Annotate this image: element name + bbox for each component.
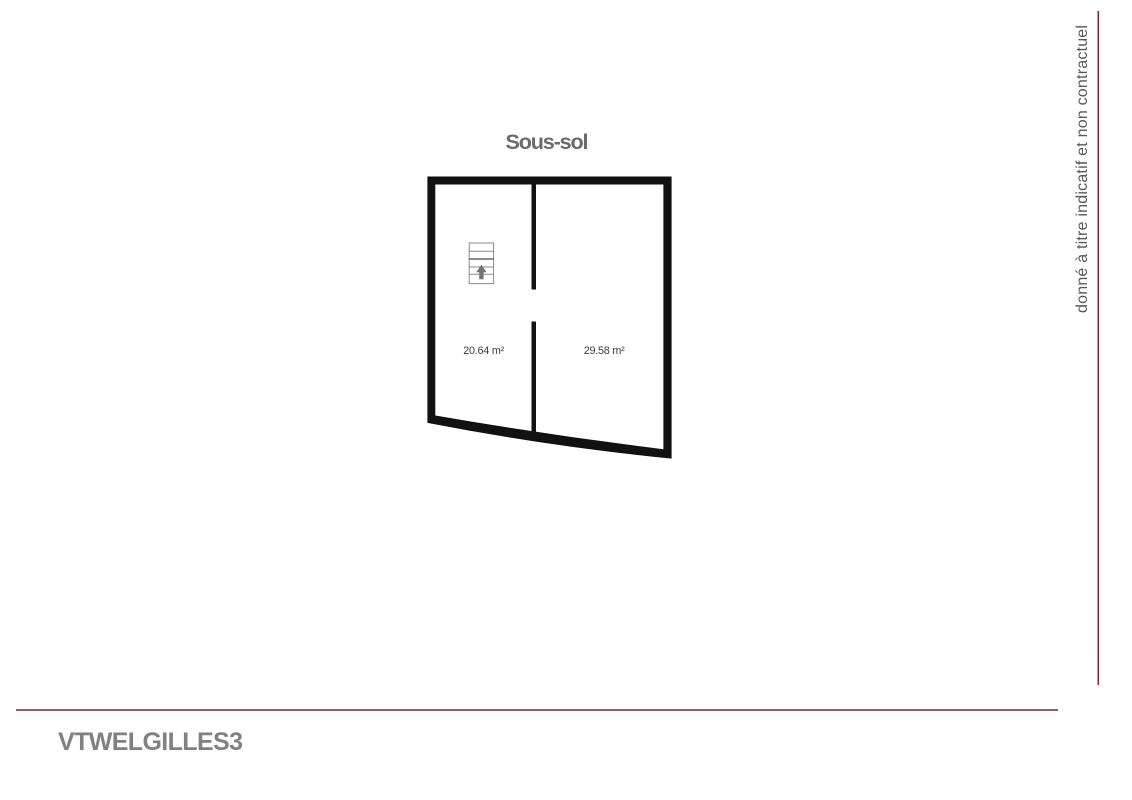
svg-text:donné à titre indicatif et non: donné à titre indicatif et non contractu…: [1074, 25, 1091, 313]
svg-text:29.58 m²: 29.58 m²: [584, 345, 625, 357]
svg-text:VTWELGILLES3: VTWELGILLES3: [58, 728, 243, 756]
svg-text:20.64 m²: 20.64 m²: [463, 345, 504, 357]
svg-text:Sous-sol: Sous-sol: [506, 129, 589, 154]
